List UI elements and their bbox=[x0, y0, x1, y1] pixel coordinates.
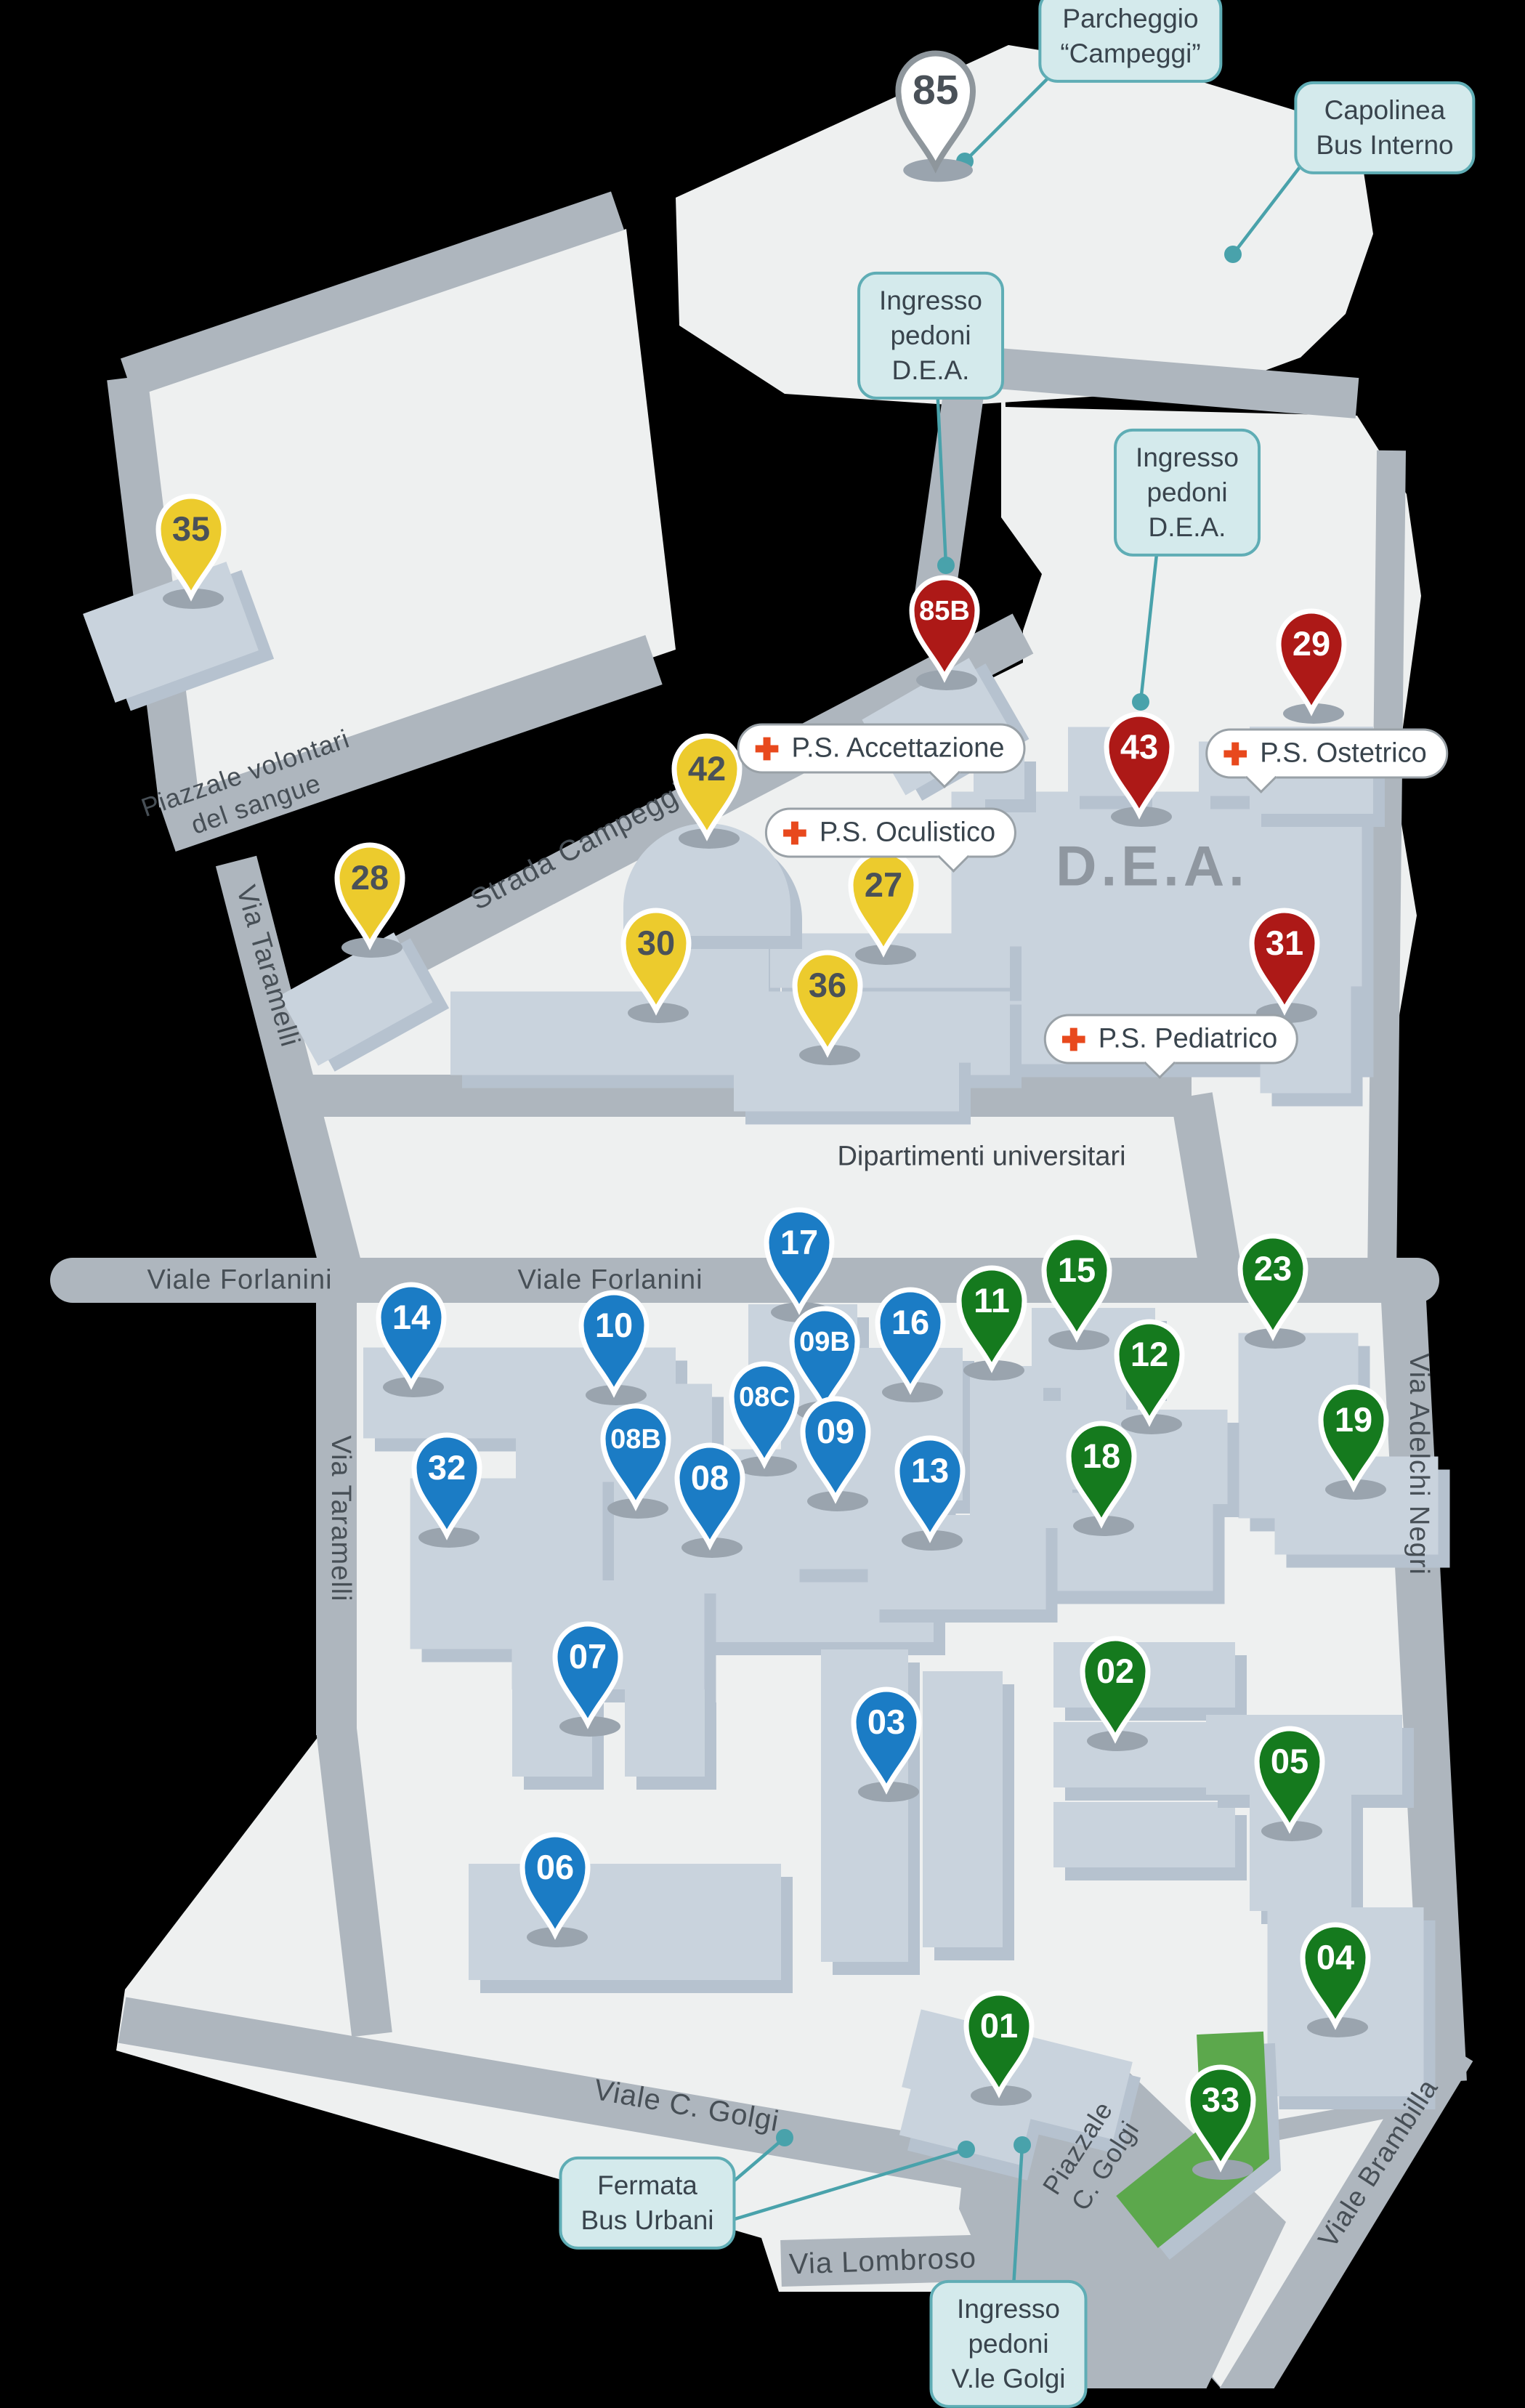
bubble-ps-ostetrico: P.S. Ostetrico bbox=[1205, 729, 1448, 779]
medical-cross-icon bbox=[780, 818, 809, 847]
bubble-label: P.S. Pediatrico bbox=[1099, 1024, 1277, 1055]
medical-cross-icon bbox=[1221, 739, 1250, 768]
callouts: Parcheggio “Campeggi”Capolinea Bus Inter… bbox=[0, 0, 1525, 2388]
bubble-label: P.S. Accettazione bbox=[792, 733, 1005, 764]
medical-cross-icon bbox=[1059, 1025, 1088, 1054]
bubble-label: P.S. Ostetrico bbox=[1260, 738, 1427, 769]
callout-ingresso-pedoni-dea-est: Ingresso pedoni D.E.A. bbox=[1114, 429, 1261, 557]
bubble-ps-pediatrico: P.S. Pediatrico bbox=[1044, 1014, 1298, 1064]
callout-parcheggio-campeggi: Parcheggio “Campeggi” bbox=[1038, 0, 1222, 83]
bubble-ps-oculistico: P.S. Oculistico bbox=[765, 808, 1016, 858]
callout-fermata-bus-urbani: Fermata Bus Urbani bbox=[559, 2157, 735, 2250]
callout-ingresso-pedoni-vle-golgi: Ingresso pedoni V.le Golgi bbox=[929, 2280, 1087, 2408]
bubble-label: P.S. Oculistico bbox=[820, 817, 995, 849]
callout-capolinea-bus-interno: Capolinea Bus Interno bbox=[1294, 81, 1475, 174]
medical-cross-icon bbox=[753, 734, 782, 763]
hospital-campus-map: Piazzale volontari del sangueStrada Camp… bbox=[0, 0, 1525, 2388]
callout-ingresso-pedoni-dea-nord: Ingresso pedoni D.E.A. bbox=[857, 272, 1004, 400]
bubble-ps-accettazione: P.S. Accettazione bbox=[737, 724, 1026, 774]
